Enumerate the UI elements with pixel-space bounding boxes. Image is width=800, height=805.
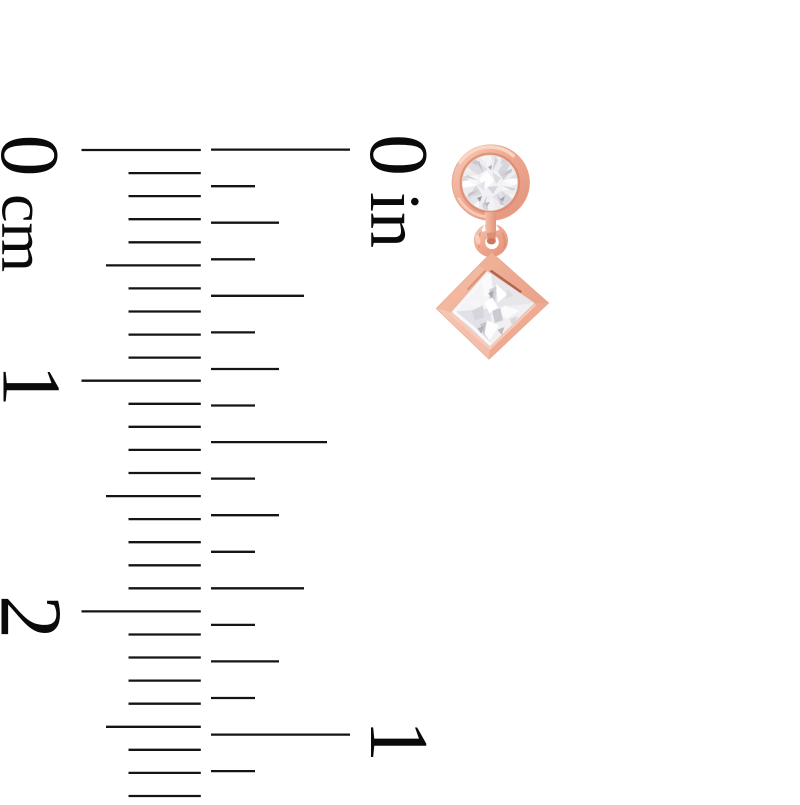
svg-text:1: 1	[0, 365, 78, 407]
svg-text:1: 1	[352, 720, 445, 762]
svg-text:2: 2	[0, 595, 79, 639]
svg-text:0: 0	[0, 135, 76, 177]
svg-text:cm: cm	[0, 194, 60, 272]
svg-text:0: 0	[352, 134, 445, 176]
svg-text:in: in	[355, 192, 435, 248]
